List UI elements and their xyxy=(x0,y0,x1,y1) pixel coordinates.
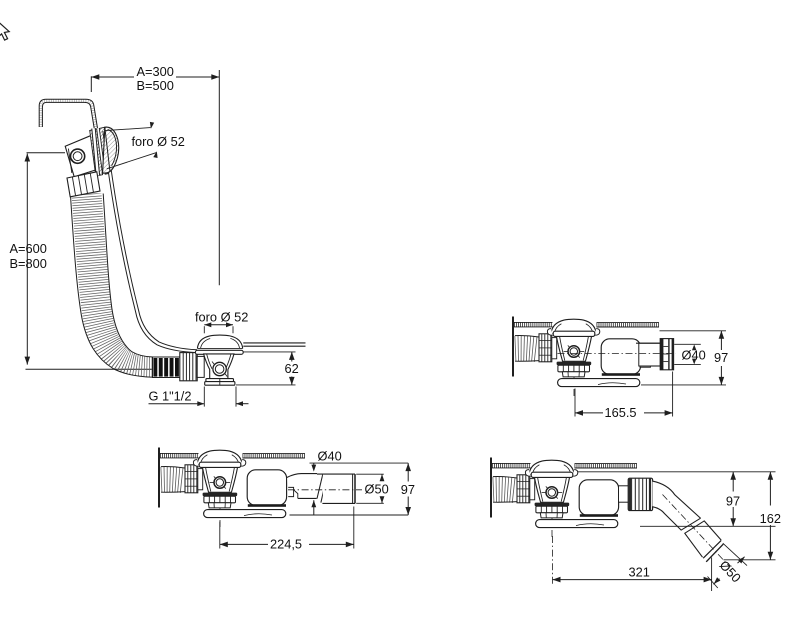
svg-text:A=600: A=600 xyxy=(10,241,47,256)
svg-text:foro Ø 52: foro Ø 52 xyxy=(195,310,248,325)
svg-text:foro Ø 52: foro Ø 52 xyxy=(132,134,185,149)
svg-text:224,5: 224,5 xyxy=(270,537,302,552)
svg-text:165.5: 165.5 xyxy=(605,405,637,420)
svg-text:G 1"1/2: G 1"1/2 xyxy=(149,388,192,403)
svg-text:62: 62 xyxy=(285,361,299,376)
svg-text:97: 97 xyxy=(401,482,415,497)
svg-text:Ø40: Ø40 xyxy=(682,347,706,362)
svg-text:A=300: A=300 xyxy=(137,64,174,79)
svg-text:97: 97 xyxy=(726,493,740,508)
svg-text:97: 97 xyxy=(714,350,728,365)
svg-text:Ø50: Ø50 xyxy=(365,482,389,497)
svg-text:Ø40: Ø40 xyxy=(318,448,342,463)
svg-text:B=800: B=800 xyxy=(10,256,47,271)
svg-text:162: 162 xyxy=(760,511,781,526)
svg-text:B=500: B=500 xyxy=(137,78,174,93)
svg-text:321: 321 xyxy=(629,564,650,579)
